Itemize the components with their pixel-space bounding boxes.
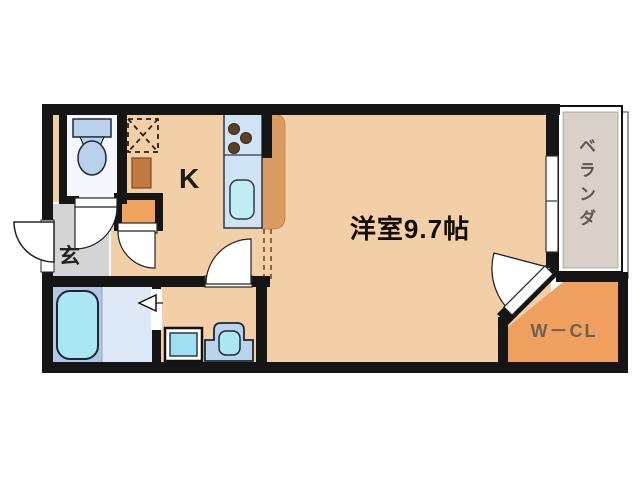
bathtub-icon [57,291,98,359]
storage-box-icon [132,158,151,188]
kitchen-label: K [179,163,199,195]
entrance-door-icon [14,220,54,272]
bathroom [53,287,153,363]
floor-plan: K 洋室9.7帖 玄 W－CL ベランダ [0,0,640,480]
main-room-label: 洋室9.7帖 [315,209,505,246]
kitchen-sink-icon [230,180,254,219]
walk-in-closet-label: W－CL [506,317,622,343]
washing-machine-icon [165,328,202,361]
window-icon [546,156,558,252]
toilet-room [66,114,118,200]
veranda-label: ベランダ [573,137,598,233]
entrance-label: 玄 [59,240,80,270]
